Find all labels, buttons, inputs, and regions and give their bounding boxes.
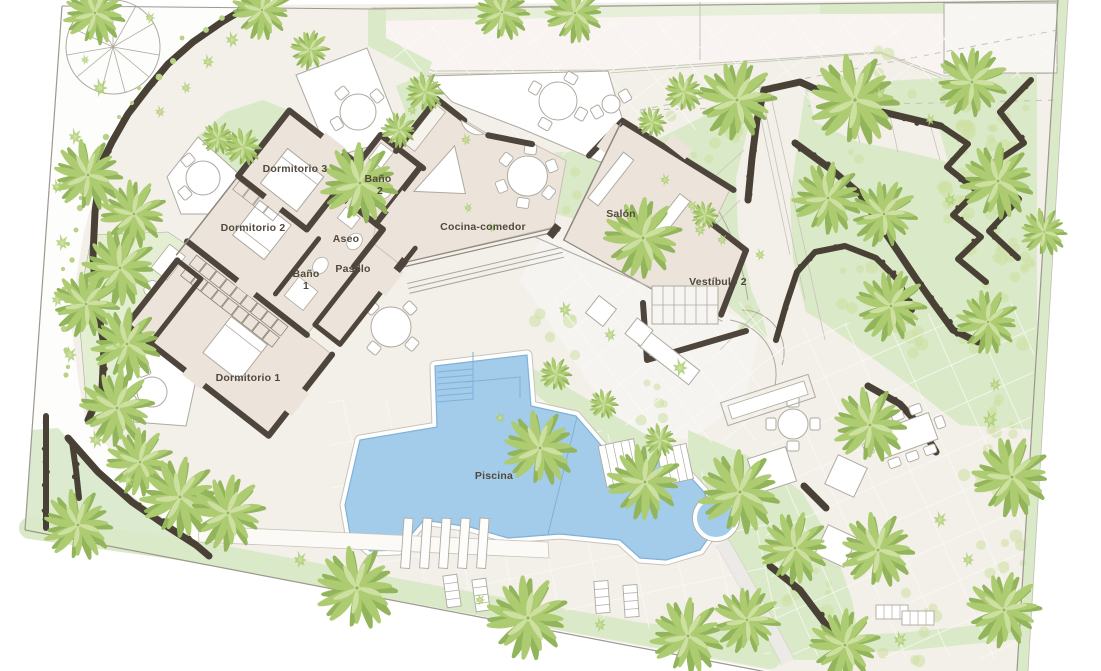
svg-text:Dormitorio 1: Dormitorio 1 (216, 372, 281, 384)
svg-text:1: 1 (303, 280, 309, 292)
svg-text:Pasillo: Pasillo (335, 263, 370, 275)
svg-text:Dormitorio 2: Dormitorio 2 (221, 222, 286, 234)
svg-text:2: 2 (377, 185, 383, 197)
svg-text:Dormitorio 3: Dormitorio 3 (263, 163, 328, 175)
svg-text:Salón: Salón (606, 208, 636, 220)
svg-text:Baño: Baño (292, 268, 319, 280)
svg-text:Cocina-comedor: Cocina-comedor (440, 221, 526, 233)
svg-text:Piscina: Piscina (475, 470, 513, 482)
svg-text:Aseo: Aseo (333, 233, 359, 245)
svg-text:Vestíbulo 2: Vestíbulo 2 (689, 276, 747, 288)
svg-text:Baño: Baño (364, 173, 391, 185)
